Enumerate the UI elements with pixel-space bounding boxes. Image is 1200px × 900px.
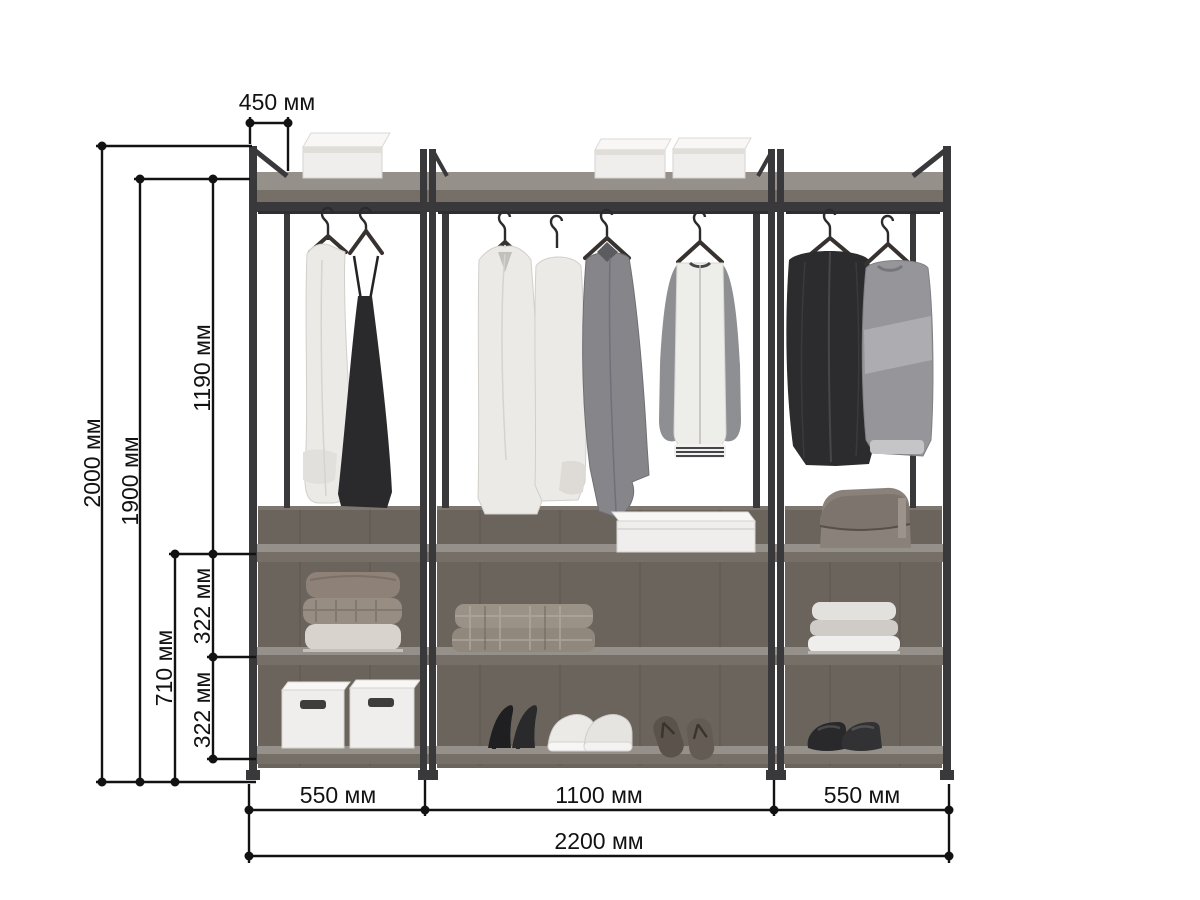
wardrobe bbox=[246, 133, 954, 780]
post-divider-left-b bbox=[429, 149, 436, 778]
dim-label-total-height: 2000 мм bbox=[79, 418, 105, 507]
dim-hanging-height: 1190 мм bbox=[189, 175, 218, 559]
dim-label-shelf-gap-bottom: 322 мм bbox=[189, 672, 215, 748]
post-divider-right-a bbox=[768, 149, 775, 778]
dim-shelf-gap-bottom: 322 мм bbox=[189, 657, 218, 764]
storage-box-bottom-2 bbox=[350, 680, 420, 748]
garment-white-robe bbox=[478, 242, 543, 514]
post-right-outer bbox=[943, 146, 951, 778]
dim-shelf-height: 1900 мм bbox=[117, 175, 145, 787]
product-dimension-diagram: 450 мм 2000 мм 1900 мм bbox=[0, 0, 1200, 900]
dim-label-lower-section: 710 мм bbox=[151, 630, 177, 706]
dim-shelf-gap-top: 322 мм bbox=[189, 554, 218, 662]
garment-white-shirt bbox=[535, 257, 586, 501]
folded-stack-right bbox=[808, 602, 900, 654]
post-divider-right-b bbox=[777, 149, 784, 778]
dim-lower-section: 710 мм bbox=[151, 550, 180, 787]
feet bbox=[246, 770, 954, 780]
garment-varsity-jacket bbox=[659, 242, 741, 458]
dim-label-shelf-height: 1900 мм bbox=[117, 436, 143, 525]
dim-label-center-width: 1100 мм bbox=[555, 782, 642, 808]
garment-gray-sweater bbox=[862, 244, 933, 456]
garment-gray-coat bbox=[583, 238, 649, 517]
black-slippers bbox=[808, 722, 882, 751]
dim-label-depth: 450 мм bbox=[239, 89, 315, 115]
dim-total-height: 2000 мм bbox=[79, 142, 107, 787]
dim-label-shelf-gap-top: 322 мм bbox=[189, 568, 215, 644]
top-storage-boxes bbox=[303, 133, 751, 178]
top-apron-bar bbox=[252, 202, 948, 212]
dim-label-hanging-height: 1190 мм bbox=[189, 324, 215, 411]
wardrobe-diagram: 450 мм 2000 мм 1900 мм bbox=[0, 0, 1200, 900]
post-left-outer bbox=[249, 146, 257, 778]
folded-stack-left bbox=[303, 572, 403, 652]
hanging-clothes bbox=[303, 208, 933, 517]
dim-label-right-width: 550 мм bbox=[824, 782, 900, 808]
storage-box-left bbox=[303, 133, 390, 178]
dim-section-widths: 550 мм 1100 мм 550 мм bbox=[245, 782, 954, 815]
dim-label-left-width: 550 мм bbox=[300, 782, 376, 808]
storage-box-center-2 bbox=[673, 138, 751, 178]
leather-bag bbox=[820, 488, 911, 548]
storage-box-center-1 bbox=[595, 139, 671, 178]
shoe-box bbox=[612, 512, 755, 552]
dim-label-total-width: 2200 мм bbox=[554, 828, 643, 854]
folded-plaid-center bbox=[452, 604, 595, 652]
dim-total-width: 2200 мм bbox=[245, 828, 954, 861]
storage-box-bottom-1 bbox=[282, 682, 350, 748]
white-sneakers bbox=[548, 715, 632, 752]
post-divider-left-a bbox=[420, 149, 427, 778]
